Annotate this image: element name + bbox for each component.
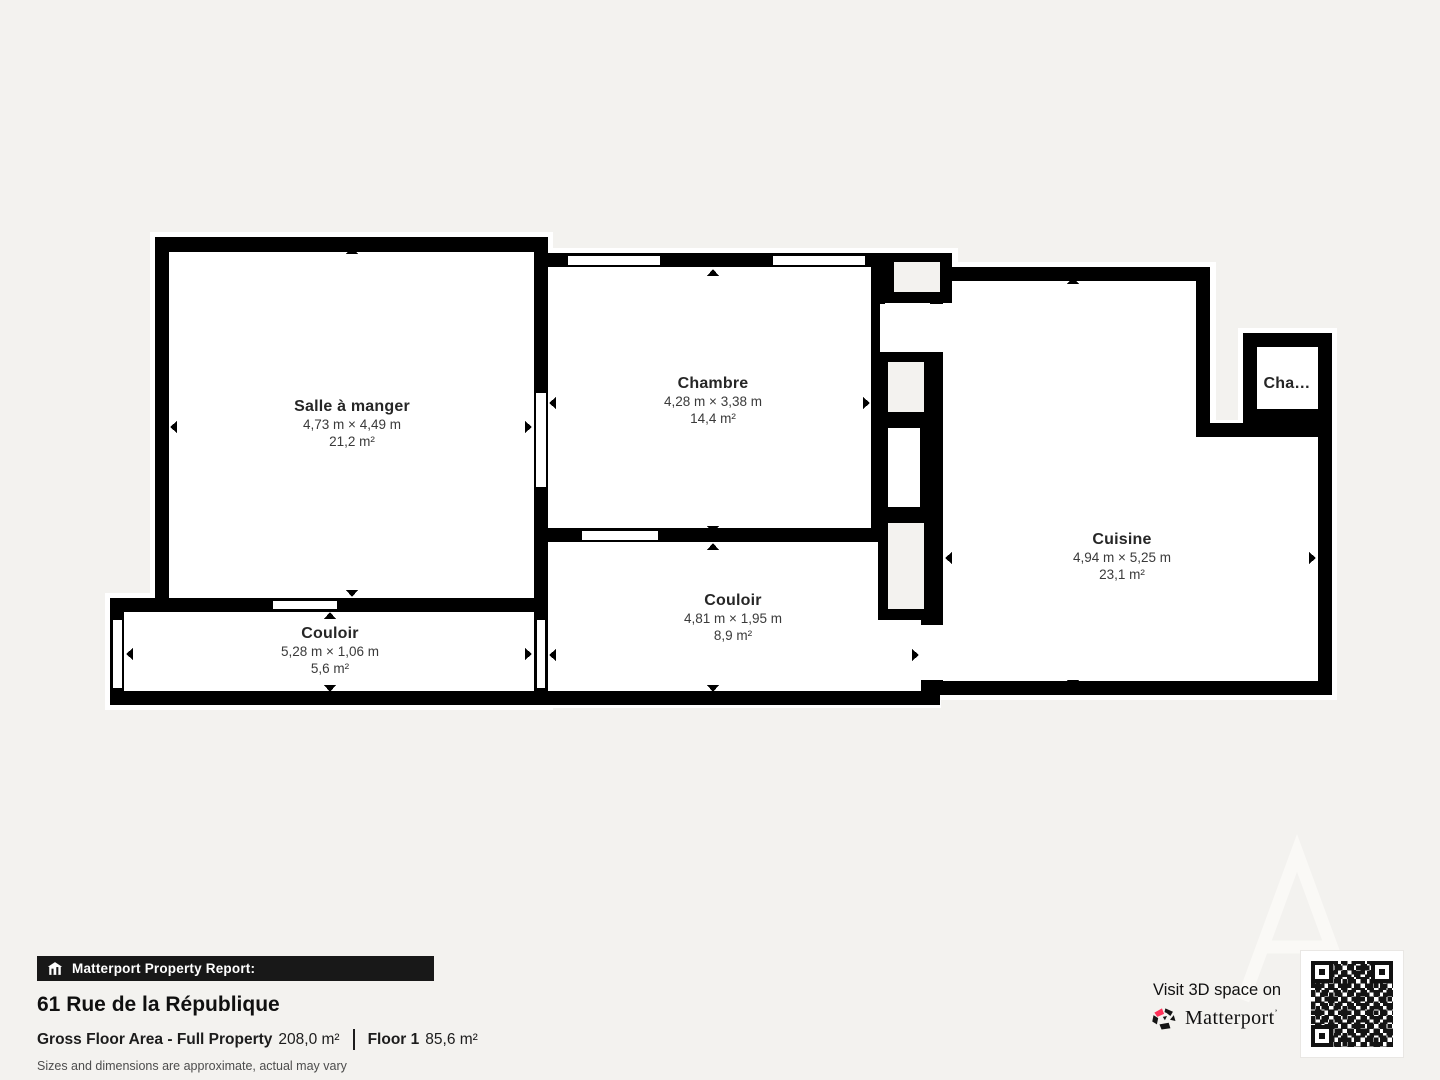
gfa-value: 208,0 m² <box>278 1031 339 1049</box>
property-address: 61 Rue de la République <box>37 993 478 1017</box>
room-area: 14,4 m² <box>664 410 762 427</box>
room-dimensions: 4,81 m × 1,95 m <box>684 610 782 627</box>
qr-code <box>1300 950 1404 1058</box>
room-area: 8,9 m² <box>684 627 782 644</box>
room-label-cuisine: Cuisine 4,94 m × 5,25 m 23,1 m² <box>1073 530 1171 583</box>
room-name: Cuisine <box>1073 530 1171 549</box>
gfa-label: Gross Floor Area - Full Property <box>37 1031 272 1049</box>
disclaimer-text: Sizes and dimensions are approximate, ac… <box>37 1059 478 1073</box>
trademark-mark: ’ <box>1275 1008 1278 1018</box>
room-label-salle-a-manger: Salle à manger 4,73 m × 4,49 m 21,2 m² <box>294 397 410 450</box>
report-bar-title: Matterport Property Report: <box>72 961 255 976</box>
qr-finder-icon <box>1371 961 1393 983</box>
report-footer: Matterport Property Report: 61 Rue de la… <box>37 956 478 1073</box>
matterport-floorplan-page: { "colors": { "background": "#f3f2ef", "… <box>0 0 1440 1080</box>
visit-3d-promo: Visit 3D space on Matterport ’ <box>1151 981 1281 1032</box>
room-name: Chambre <box>664 374 762 393</box>
floor-area-stats: Gross Floor Area - Full Property 208,0 m… <box>37 1029 478 1050</box>
room-dimensions: 4,94 m × 5,25 m <box>1073 549 1171 566</box>
room-area: 5,6 m² <box>281 660 379 677</box>
visit-3d-text: Visit 3D space on <box>1151 981 1281 1000</box>
qr-finder-icon <box>1311 961 1333 983</box>
room-label-chambre: Chambre 4,28 m × 3,38 m 14,4 m² <box>664 374 762 427</box>
room-name: Cha… <box>1263 374 1310 393</box>
room-label-couloir-center: Couloir 4,81 m × 1,95 m 8,9 m² <box>684 591 782 644</box>
room-label-cha-truncated: Cha… <box>1263 374 1310 393</box>
room-area: 21,2 m² <box>294 433 410 450</box>
room-name: Couloir <box>684 591 782 610</box>
matterport-wordmark: Matterport <box>1185 1007 1275 1030</box>
room-name: Salle à manger <box>294 397 410 416</box>
room-dimensions: 4,73 m × 4,49 m <box>294 416 410 433</box>
house-report-icon <box>47 961 63 976</box>
room-dimensions: 4,28 m × 3,38 m <box>664 393 762 410</box>
floor-label: Floor 1 <box>368 1031 420 1049</box>
room-area: 23,1 m² <box>1073 566 1171 583</box>
room-dimensions: 5,28 m × 1,06 m <box>281 643 379 660</box>
divider <box>353 1029 355 1050</box>
qr-pattern <box>1311 961 1393 1047</box>
room-name: Couloir <box>281 624 379 643</box>
room-label-couloir-left: Couloir 5,28 m × 1,06 m 5,6 m² <box>281 624 379 677</box>
matterport-logo-icon <box>1151 1005 1178 1032</box>
report-title-bar: Matterport Property Report: <box>37 956 434 981</box>
qr-finder-icon <box>1311 1025 1333 1047</box>
floor-value: 85,6 m² <box>425 1031 478 1049</box>
watermark-letter-a <box>0 0 1440 1080</box>
matterport-brand-row: Matterport ’ <box>1151 1005 1281 1032</box>
